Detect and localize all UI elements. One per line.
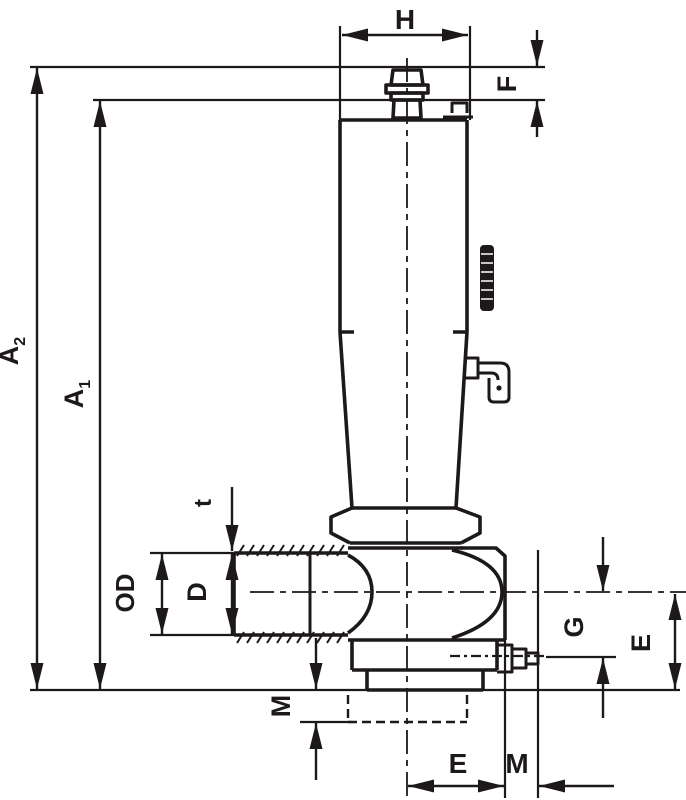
left-threaded-port xyxy=(234,553,348,635)
dim-label-m-left: M xyxy=(266,695,296,718)
plug-tip xyxy=(526,653,538,664)
clip-pin xyxy=(496,385,501,390)
clip-arm-outer xyxy=(478,363,509,399)
dim-label-m-bottom: M xyxy=(505,748,528,779)
marking-strip xyxy=(480,245,494,311)
dimension-lines xyxy=(37,30,675,786)
dim-label-t: t xyxy=(190,499,217,507)
collar-flange xyxy=(331,508,480,548)
drain-plug xyxy=(497,645,538,672)
handle-top-bracket xyxy=(443,103,473,117)
dim-label-d: D xyxy=(182,582,212,602)
dim-label-e-right: E xyxy=(626,634,656,652)
plug-head xyxy=(512,649,526,668)
base-step-2 xyxy=(367,670,483,690)
dim-label-f: F xyxy=(492,76,522,93)
locking-clip xyxy=(465,358,509,402)
dim-label-g: G xyxy=(559,616,589,637)
dim-label-a1: A1 xyxy=(59,380,94,409)
handle-side-marking xyxy=(480,245,494,311)
technical-drawing-canvas: H F A2 A1 t OD D M G E E M xyxy=(0,0,686,800)
extension-lines xyxy=(30,26,680,798)
collar-right xyxy=(456,508,480,543)
dim-label-e-bottom: E xyxy=(449,748,468,779)
taper-left xyxy=(340,332,352,508)
dim-label-od: OD xyxy=(110,574,140,613)
dim-label-h: H xyxy=(395,4,415,35)
dimension-labels: H F A2 A1 t OD D M G E E M xyxy=(0,4,656,779)
stepped-base xyxy=(352,640,497,690)
valve-dimension-drawing: H F A2 A1 t OD D M G E E M xyxy=(0,0,686,800)
thread-hatching xyxy=(237,545,344,643)
body-arc-right xyxy=(452,550,502,638)
dim-label-a2: A2 xyxy=(0,337,29,366)
bracket-box xyxy=(452,103,467,113)
valve-outline xyxy=(234,70,538,690)
collar-left xyxy=(331,508,352,543)
body-arc-left xyxy=(348,555,372,633)
